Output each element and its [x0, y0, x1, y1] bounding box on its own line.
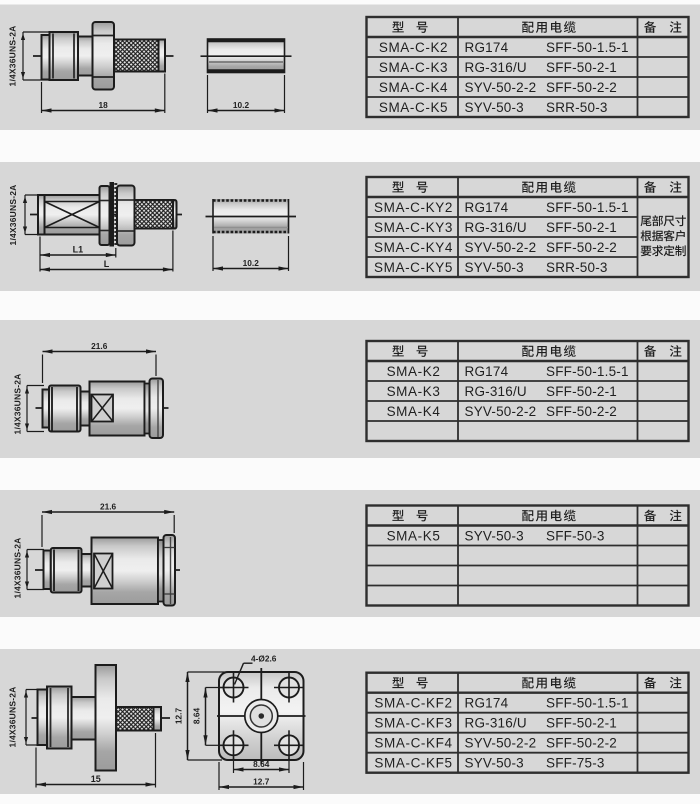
svg-text:RG174: RG174 [465, 200, 509, 215]
svg-text:1/4X36UNS-2A: 1/4X36UNS-2A [8, 185, 18, 246]
svg-text:12.7: 12.7 [253, 777, 270, 787]
svg-text:SFF-50-2-2: SFF-50-2-2 [546, 80, 617, 95]
svg-text:SYV-50-2-2: SYV-50-2-2 [465, 404, 537, 419]
svg-text:L: L [104, 259, 110, 269]
svg-text:SMA-C-KF4: SMA-C-KF4 [374, 736, 452, 751]
svg-text:SRR-50-3: SRR-50-3 [546, 260, 608, 275]
svg-text:SFF-50-2-1: SFF-50-2-1 [546, 384, 617, 399]
svg-text:RG174: RG174 [465, 696, 509, 711]
svg-text:SFF-50-1.5-1: SFF-50-1.5-1 [546, 364, 629, 379]
svg-text:SYV-50-3: SYV-50-3 [465, 528, 524, 543]
svg-text:L1: L1 [73, 245, 84, 255]
svg-text:SMA-K5: SMA-K5 [387, 528, 441, 543]
svg-text:SMA-C-K2: SMA-C-K2 [379, 40, 448, 55]
svg-text:SMA-C-KY4: SMA-C-KY4 [374, 240, 453, 255]
svg-text:RG-316/U: RG-316/U [465, 60, 527, 75]
svg-text:18: 18 [99, 100, 109, 110]
svg-text:SMA-C-K4: SMA-C-K4 [379, 80, 448, 95]
svg-text:SFF-50-3: SFF-50-3 [546, 528, 605, 543]
svg-text:15: 15 [91, 774, 101, 784]
svg-text:SYV-50-2-2: SYV-50-2-2 [465, 240, 537, 255]
svg-text:SYV-50-3: SYV-50-3 [465, 756, 524, 771]
svg-text:10.2: 10.2 [233, 100, 250, 110]
svg-text:12.7: 12.7 [174, 708, 184, 725]
svg-text:SMA-C-K3: SMA-C-K3 [379, 60, 448, 75]
svg-text:RG174: RG174 [465, 364, 509, 379]
svg-text:SYV-50-3: SYV-50-3 [465, 100, 524, 115]
svg-text:SFF-50-2-2: SFF-50-2-2 [546, 240, 617, 255]
svg-text:SYV-50-2-2: SYV-50-2-2 [465, 736, 537, 751]
svg-text:RG174: RG174 [465, 40, 509, 55]
svg-text:1/4X36UNS-2A: 1/4X36UNS-2A [13, 374, 23, 435]
svg-text:SYV-50-2-2: SYV-50-2-2 [465, 80, 537, 95]
svg-text:SFF-75-3: SFF-75-3 [546, 756, 605, 771]
svg-text:8.64: 8.64 [192, 708, 202, 725]
svg-text:1/4X36UNS-2A: 1/4X36UNS-2A [13, 538, 23, 599]
svg-text:SMA-K3: SMA-K3 [387, 384, 441, 399]
svg-text:SMA-C-KF5: SMA-C-KF5 [374, 756, 452, 771]
svg-text:RG-316/U: RG-316/U [465, 716, 527, 731]
svg-text:SMA-C-K5: SMA-C-K5 [379, 100, 448, 115]
svg-text:1/4X36UNS-2A: 1/4X36UNS-2A [8, 687, 18, 748]
svg-text:SYV-50-3: SYV-50-3 [465, 260, 524, 275]
svg-text:SFF-50-2-1: SFF-50-2-1 [546, 716, 617, 731]
svg-text:SMA-K2: SMA-K2 [387, 364, 441, 379]
svg-text:SMA-C-KY2: SMA-C-KY2 [374, 200, 453, 215]
svg-text:SFF-50-2-1: SFF-50-2-1 [546, 60, 617, 75]
svg-text:21.6: 21.6 [100, 502, 117, 512]
svg-text:1/4X36UNS-2A: 1/4X36UNS-2A [8, 26, 18, 87]
svg-text:4-Ø2.6: 4-Ø2.6 [251, 654, 277, 664]
svg-text:SMA-C-KF2: SMA-C-KF2 [374, 696, 452, 711]
svg-text:8.64: 8.64 [253, 759, 270, 769]
svg-text:SFF-50-2-1: SFF-50-2-1 [546, 220, 617, 235]
svg-text:SFF-50-1.5-1: SFF-50-1.5-1 [546, 40, 629, 55]
svg-text:SMA-C-KF3: SMA-C-KF3 [374, 716, 452, 731]
svg-text:RG-316/U: RG-316/U [465, 384, 527, 399]
svg-text:SFF-50-1.5-1: SFF-50-1.5-1 [546, 200, 629, 215]
svg-text:SMA-C-KY3: SMA-C-KY3 [374, 220, 453, 235]
svg-text:RG-316/U: RG-316/U [465, 220, 527, 235]
svg-text:SMA-K4: SMA-K4 [387, 404, 441, 419]
svg-text:SFF-50-2-2: SFF-50-2-2 [546, 404, 617, 419]
svg-text:21.6: 21.6 [91, 341, 108, 351]
svg-text:SFF-50-1.5-1: SFF-50-1.5-1 [546, 696, 629, 711]
svg-text:SFF-50-2-2: SFF-50-2-2 [546, 736, 617, 751]
svg-text:SRR-50-3: SRR-50-3 [546, 100, 608, 115]
svg-text:10.2: 10.2 [243, 258, 260, 268]
svg-text:SMA-C-KY5: SMA-C-KY5 [374, 260, 453, 275]
